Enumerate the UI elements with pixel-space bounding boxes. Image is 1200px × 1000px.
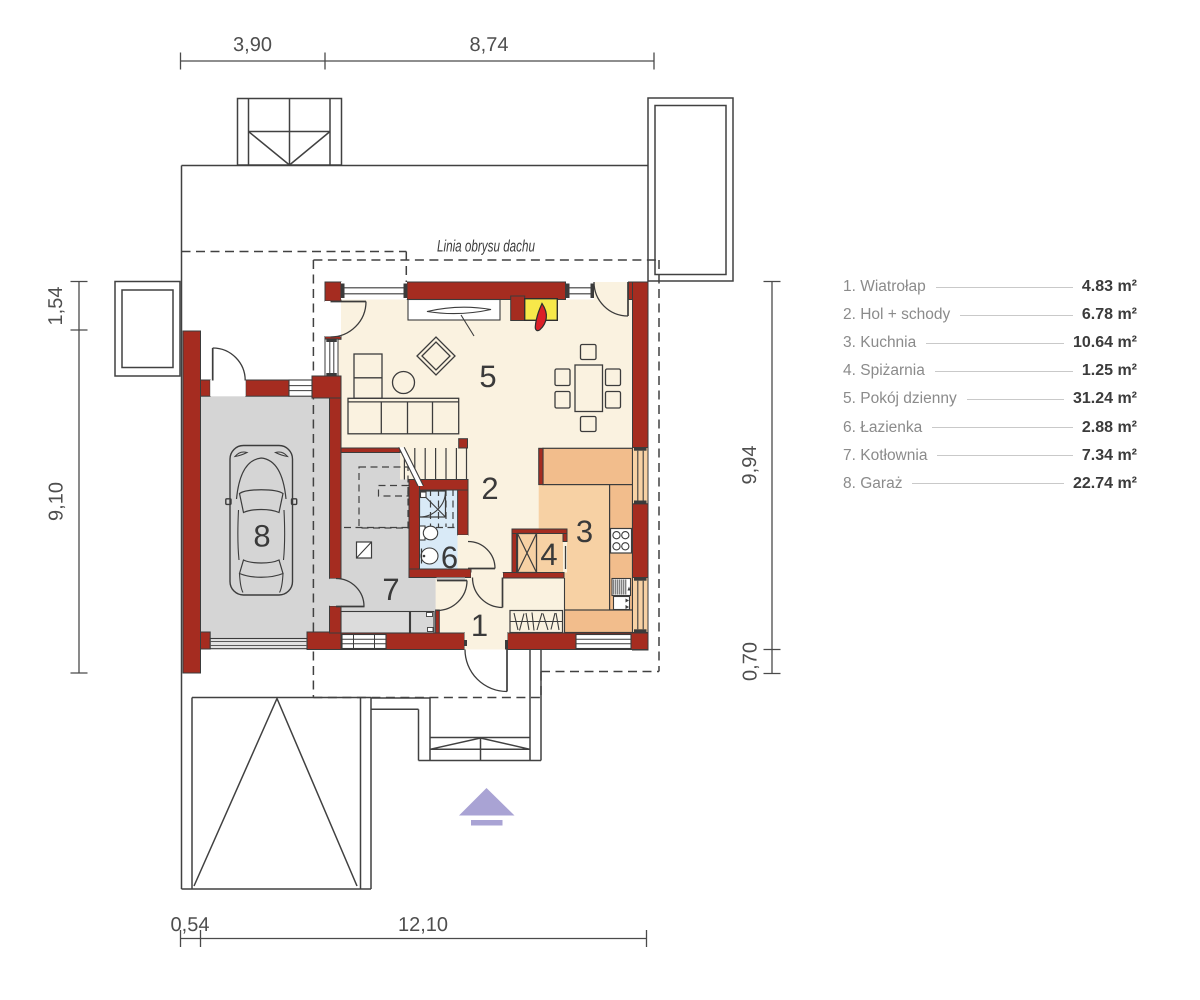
svg-text:2: 2 <box>481 471 498 506</box>
svg-text:Linia obrysu dachu: Linia obrysu dachu <box>437 238 535 256</box>
svg-text:8: 8 <box>253 519 270 554</box>
svg-text:3: 3 <box>576 514 593 549</box>
svg-text:0,70: 0,70 <box>740 642 762 681</box>
svg-text:9,10: 9,10 <box>46 482 68 521</box>
svg-text:4: 4 <box>540 537 557 572</box>
svg-text:6: 6 <box>441 540 458 575</box>
svg-text:1,54: 1,54 <box>45 287 67 326</box>
svg-text:3,90: 3,90 <box>233 34 272 56</box>
svg-text:12,10: 12,10 <box>398 914 448 936</box>
svg-text:8,74: 8,74 <box>470 34 509 56</box>
svg-text:7: 7 <box>382 572 399 607</box>
svg-text:0,54: 0,54 <box>171 914 210 936</box>
svg-text:5: 5 <box>479 359 496 394</box>
svg-text:1: 1 <box>471 608 488 643</box>
svg-text:9,94: 9,94 <box>739 446 761 485</box>
